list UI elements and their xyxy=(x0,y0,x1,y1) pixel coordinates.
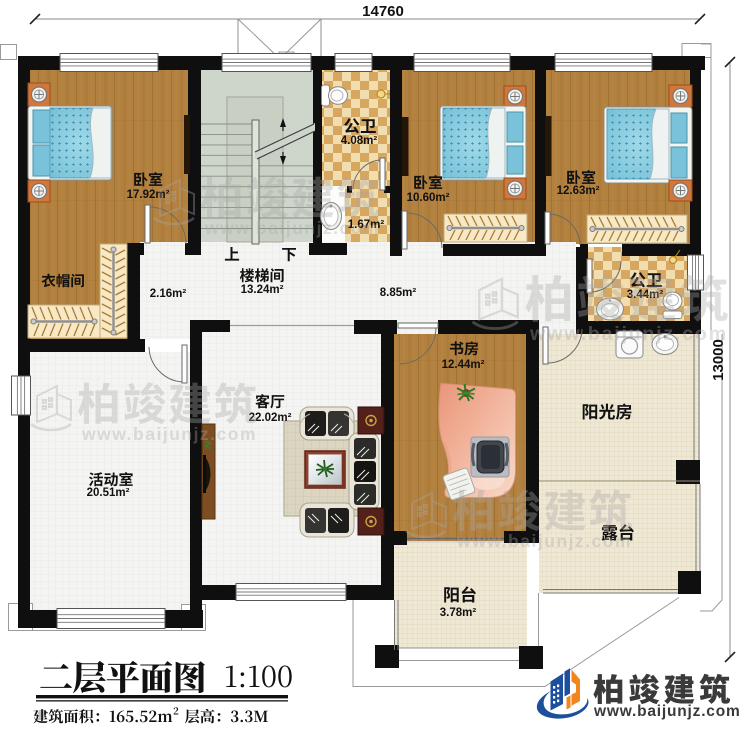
svg-text:13000: 13000 xyxy=(710,339,727,381)
svg-text:www.baijunjz.com: www.baijunjz.com xyxy=(456,531,632,551)
svg-text:12.44m²: 12.44m² xyxy=(442,359,485,371)
svg-text:www.baijunjz.com: www.baijunjz.com xyxy=(204,218,380,238)
svg-text:www.baijunjz.com: www.baijunjz.com xyxy=(529,323,728,345)
svg-text:www.baijunjz.com: www.baijunjz.com xyxy=(81,424,257,444)
svg-text:14760: 14760 xyxy=(362,3,404,20)
svg-text:12.63m²: 12.63m² xyxy=(557,185,600,197)
svg-text:www.baijunjz.com: www.baijunjz.com xyxy=(593,703,741,720)
svg-text:10.60m²: 10.60m² xyxy=(407,192,450,204)
svg-text:3.78m²: 3.78m² xyxy=(440,607,477,619)
svg-text:13.24m²: 13.24m² xyxy=(241,284,284,296)
svg-text:20.51m²: 20.51m² xyxy=(87,487,130,499)
svg-text:4.08m²: 4.08m² xyxy=(341,135,378,147)
svg-text:2.16m²: 2.16m² xyxy=(150,288,187,300)
svg-text:8.85m²: 8.85m² xyxy=(380,287,417,299)
svg-text:17.92m²: 17.92m² xyxy=(127,189,170,201)
